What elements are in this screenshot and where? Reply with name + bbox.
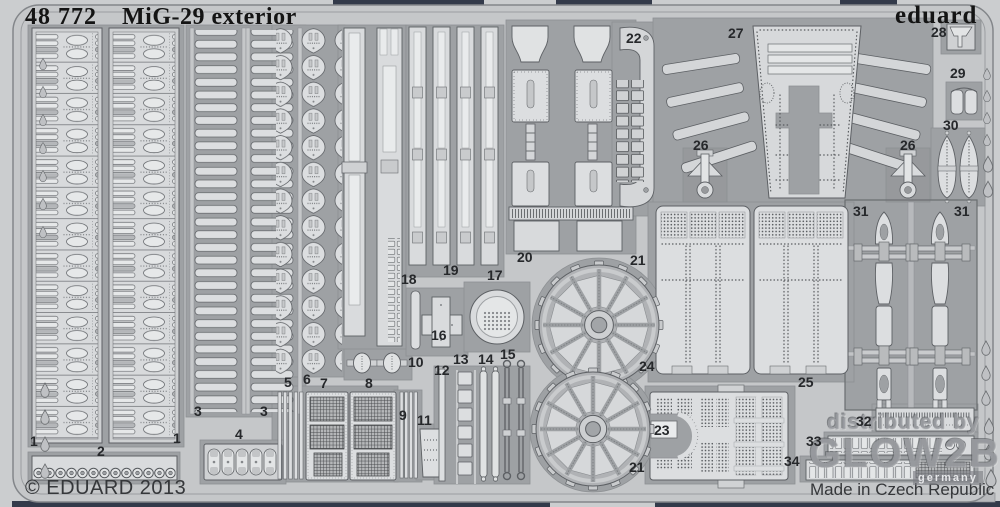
part-number-label-27: 27 — [728, 26, 744, 40]
part6-7-shell-columns — [276, 27, 342, 375]
part-number-label-1: 1 — [173, 431, 181, 445]
part-number-label-30: 30 — [943, 118, 959, 132]
part-number-label-7: 7 — [320, 376, 328, 390]
part4-grommets — [204, 444, 282, 480]
part-number-label-22: 22 — [626, 31, 642, 45]
part-number-label-28: 28 — [931, 25, 947, 39]
part-number-label-24: 24 — [639, 359, 655, 373]
part24-panel — [656, 206, 750, 374]
part-number-label-21: 21 — [630, 253, 646, 267]
part-number-label-3: 3 — [260, 404, 268, 418]
part-number-label-16: 16 — [431, 328, 447, 342]
part-number-label-25: 25 — [798, 375, 814, 389]
part-number-label-14: 14 — [478, 352, 494, 366]
part-number-label-10: 10 — [408, 355, 424, 369]
part-number-label-31: 31 — [954, 204, 970, 218]
part-number-label-21: 21 — [629, 460, 645, 474]
watermark-glow2b: GLOW2B — [809, 430, 1000, 477]
watermark-germany: germany — [913, 471, 983, 485]
part-number-label-17: 17 — [487, 268, 503, 282]
part-number-label-26: 26 — [900, 138, 916, 152]
part-number-label-18: 18 — [401, 272, 417, 286]
part8-grille-panel — [350, 392, 396, 480]
part-number-label-31: 31 — [853, 204, 869, 218]
part-number-label-23: 23 — [654, 423, 670, 437]
part-number-label-4: 4 — [235, 427, 243, 441]
part-number-label-1: 1 — [30, 434, 38, 448]
copyright-text: © EDUARD 2013 — [25, 477, 186, 500]
part-number-label-13: 13 — [453, 352, 469, 366]
catalog-number: 48 772 — [25, 4, 97, 31]
part-number-label-2: 2 — [97, 444, 105, 458]
part-number-label-3: 3 — [194, 404, 202, 418]
part-number-label-8: 8 — [365, 376, 373, 390]
part23-perforated-plate — [650, 385, 788, 488]
part-number-label-6: 6 — [303, 372, 311, 386]
part7-grille-panel — [306, 392, 348, 480]
part-number-label-34: 34 — [784, 454, 800, 468]
part-number-label-26: 26 — [693, 138, 709, 152]
part-number-label-9: 9 — [399, 408, 407, 422]
part-number-label-20: 20 — [517, 250, 533, 264]
part-number-label-15: 15 — [500, 347, 516, 361]
part-number-label-19: 19 — [443, 263, 459, 277]
product-title: MiG-29 exterior — [122, 4, 297, 31]
part-number-label-33: 33 — [806, 434, 822, 448]
part-number-label-12: 12 — [434, 363, 450, 377]
part-number-label-11: 11 — [417, 413, 432, 427]
photo-etch-sheet-photo: 48 772 MiG-29 exterior eduard © EDUARD 2… — [0, 0, 1000, 507]
part-number-label-32: 32 — [856, 414, 872, 428]
part-number-label-29: 29 — [950, 66, 966, 80]
part-number-label-5: 5 — [284, 375, 292, 389]
part25-panel — [754, 206, 848, 374]
